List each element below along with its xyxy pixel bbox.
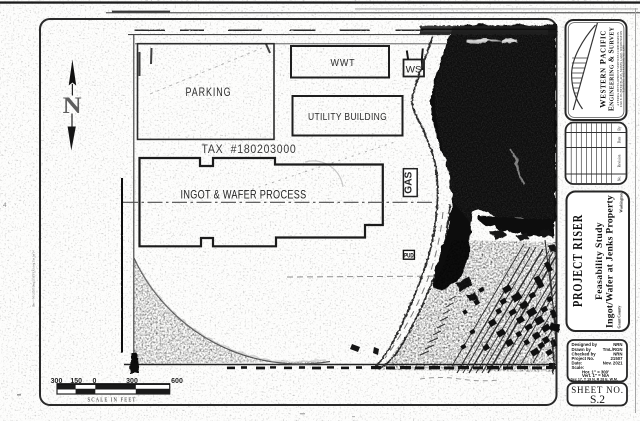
svg-text:Dec — M:\21507\Dwg\21507FEAS.d: Dec — M:\21507\Dwg\21507FEAS.dwg Tue Jan… (33, 250, 36, 307)
svg-text:Washington: Washington (620, 192, 624, 212)
svg-text:UTILITY BUILDING: UTILITY BUILDING (308, 111, 387, 123)
svg-text:Date: Date (618, 136, 622, 143)
svg-text:By: By (618, 126, 622, 130)
svg-text:4: 4 (3, 202, 7, 209)
svg-text:GAS: GAS (403, 171, 414, 193)
svg-text:Nov. 2021: Nov. 2021 (603, 361, 623, 366)
svg-text:S.2: S.2 (590, 394, 605, 406)
svg-text:T.(509)765–1023 FAX(509)7: T.(509)765–1023 FAX(509)765–1298 (622, 45, 626, 93)
svg-text:600: 600 (171, 378, 183, 385)
svg-text:PARKING: PARKING (186, 87, 232, 99)
svg-text:INGOT & WAFER PROCESS: INGOT & WAFER PROCESS (181, 189, 307, 201)
svg-text:PROJECT RISER: PROJECT RISER (570, 214, 585, 307)
svg-text:SCALE IN FEET: SCALE IN FEET (88, 397, 137, 404)
svg-text:Sec 17, T 19 N, R 28 E. W.M.: Sec 17, T 19 N, R 28 E. W.M. (571, 378, 618, 382)
svg-text:Grant County: Grant County (618, 305, 622, 328)
svg-text:N: N (63, 93, 82, 118)
svg-text:TAX #180203000: TAX #180203000 (202, 144, 297, 156)
svg-text:PUD: PUD (404, 253, 414, 260)
svg-text:Revision: Revision (618, 154, 622, 167)
svg-text:WWT: WWT (331, 57, 356, 69)
svg-text:Ingot/Wafer at Jenks Proper: Ingot/Wafer at Jenks Property (605, 195, 615, 328)
svg-text:Feasability Study: Feasability Study (594, 222, 604, 300)
svg-text:No.: No. (618, 176, 622, 181)
